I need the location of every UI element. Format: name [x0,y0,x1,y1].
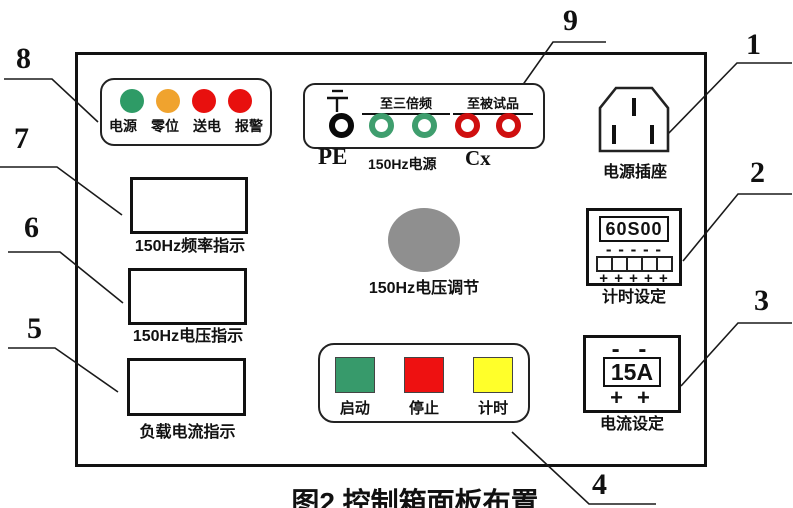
indicator-lights-panel: 电源 零位 送电 报警 [100,78,272,146]
test-object-header: 至被试品 [453,93,533,115]
test-object-terminal-icon [455,113,480,138]
current-setting-box: - - 15A + + [583,335,681,413]
timer-display: 60S00 [599,216,668,242]
leader-line-7 [0,167,122,215]
voltage-display-label: 150Hz电压指示 [103,328,273,346]
push-button-panel: 启动 停止 计时 [318,343,530,423]
leader-line-3 [681,323,792,386]
current-increment-row: + + [610,387,654,409]
timing-button-label: 计时 [478,397,508,418]
timing-button-icon [473,357,513,393]
power-socket-label: 电源插座 [590,164,680,182]
energize-light-icon [192,89,216,113]
callout-7: 7 [14,124,29,154]
start-button-label: 启动 [340,397,370,418]
leader-line-2 [683,194,792,261]
callout-2: 2 [750,158,765,188]
figure-caption: 图2 控制箱面板布置 [250,481,580,508]
energize-light-label: 送电 [186,116,228,136]
power-light-label: 电源 [102,116,144,136]
current-display: 15A [603,357,661,387]
frequency-display-label: 150Hz频率指示 [105,238,275,256]
voltage-adjust-knob [388,208,460,272]
callout-6: 6 [24,213,39,243]
timer-decrement-row: - - - - - [606,244,662,255]
load-current-display-box [127,358,246,416]
timer-setting-label: 计时设定 [586,289,682,307]
leader-line-5 [8,348,118,392]
source-150hz-label: 150Hz电源 [368,155,436,173]
power-socket-icon [597,85,671,155]
cx-label: Cx [465,149,491,167]
callout-1: 1 [746,30,761,60]
stop-button-icon [404,357,444,393]
triple-frequency-terminal-icon [369,113,394,138]
callout-5: 5 [27,314,42,344]
leader-line-8 [4,79,98,122]
timer-increment-row: + + + + + [599,272,668,285]
frequency-display-box [130,177,248,234]
pe-label: PE [318,148,347,166]
callout-9: 9 [563,6,578,36]
voltage-display-box [128,268,247,325]
figure-control-box-panel-layout: 8 7 6 5 9 1 2 3 4 电源 零位 送电 报警 至三倍频 至被试品 [0,0,793,508]
power-light-icon [120,89,144,113]
current-setting-label: 电流设定 [583,416,681,434]
start-button-icon [335,357,375,393]
terminal-panel: 至三倍频 至被试品 [303,83,545,149]
callout-8: 8 [16,44,31,74]
ground-icon [323,88,351,112]
triple-frequency-header: 至三倍频 [362,93,450,115]
callout-4: 4 [592,470,607,500]
leader-line-1 [666,63,792,136]
test-object-terminal-icon [496,113,521,138]
alarm-light-label: 报警 [228,116,270,136]
alarm-light-icon [228,89,252,113]
voltage-adjust-label: 150Hz电压调节 [344,280,504,298]
callout-3: 3 [754,286,769,316]
stop-button-label: 停止 [409,397,439,418]
leader-line-6 [8,252,123,303]
load-current-display-label: 负载电流指示 [100,424,275,442]
pe-terminal-icon [329,113,354,138]
zero-position-light-icon [156,89,180,113]
zero-position-light-label: 零位 [144,116,186,136]
current-decrement-row: - - [612,342,653,357]
triple-frequency-terminal-icon [412,113,437,138]
timer-setting-box: 60S00 - - - - - + + + + + [586,208,682,286]
